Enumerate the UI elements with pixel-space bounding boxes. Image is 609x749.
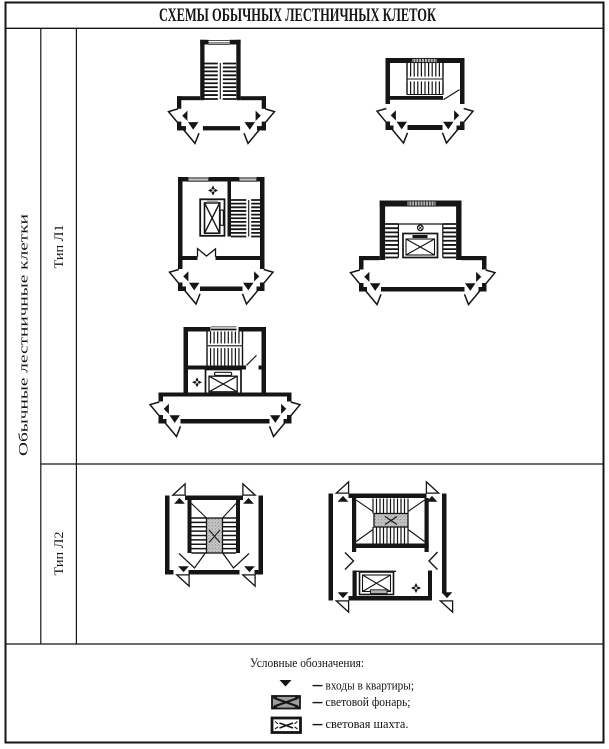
svg-text:Условные обозначения:: Условные обозначения: [250,655,364,670]
svg-text:световая шахта.: световая шахта. [326,716,409,731]
svg-text:Обычные лестничные клетки: Обычные лестничные клетки [16,214,31,456]
svg-text:Тип Л2: Тип Л2 [51,532,66,576]
svg-text:световой фонарь;: световой фонарь; [326,694,411,709]
svg-text:СХЕМЫ ОБЫЧНЫХ ЛЕСТНИЧНЫХ КЛЕТО: СХЕМЫ ОБЫЧНЫХ ЛЕСТНИЧНЫХ КЛЕТОК [159,6,436,26]
svg-text:входы в квартиры;: входы в квартиры; [326,678,415,693]
svg-text:Тип Л1: Тип Л1 [51,225,66,269]
